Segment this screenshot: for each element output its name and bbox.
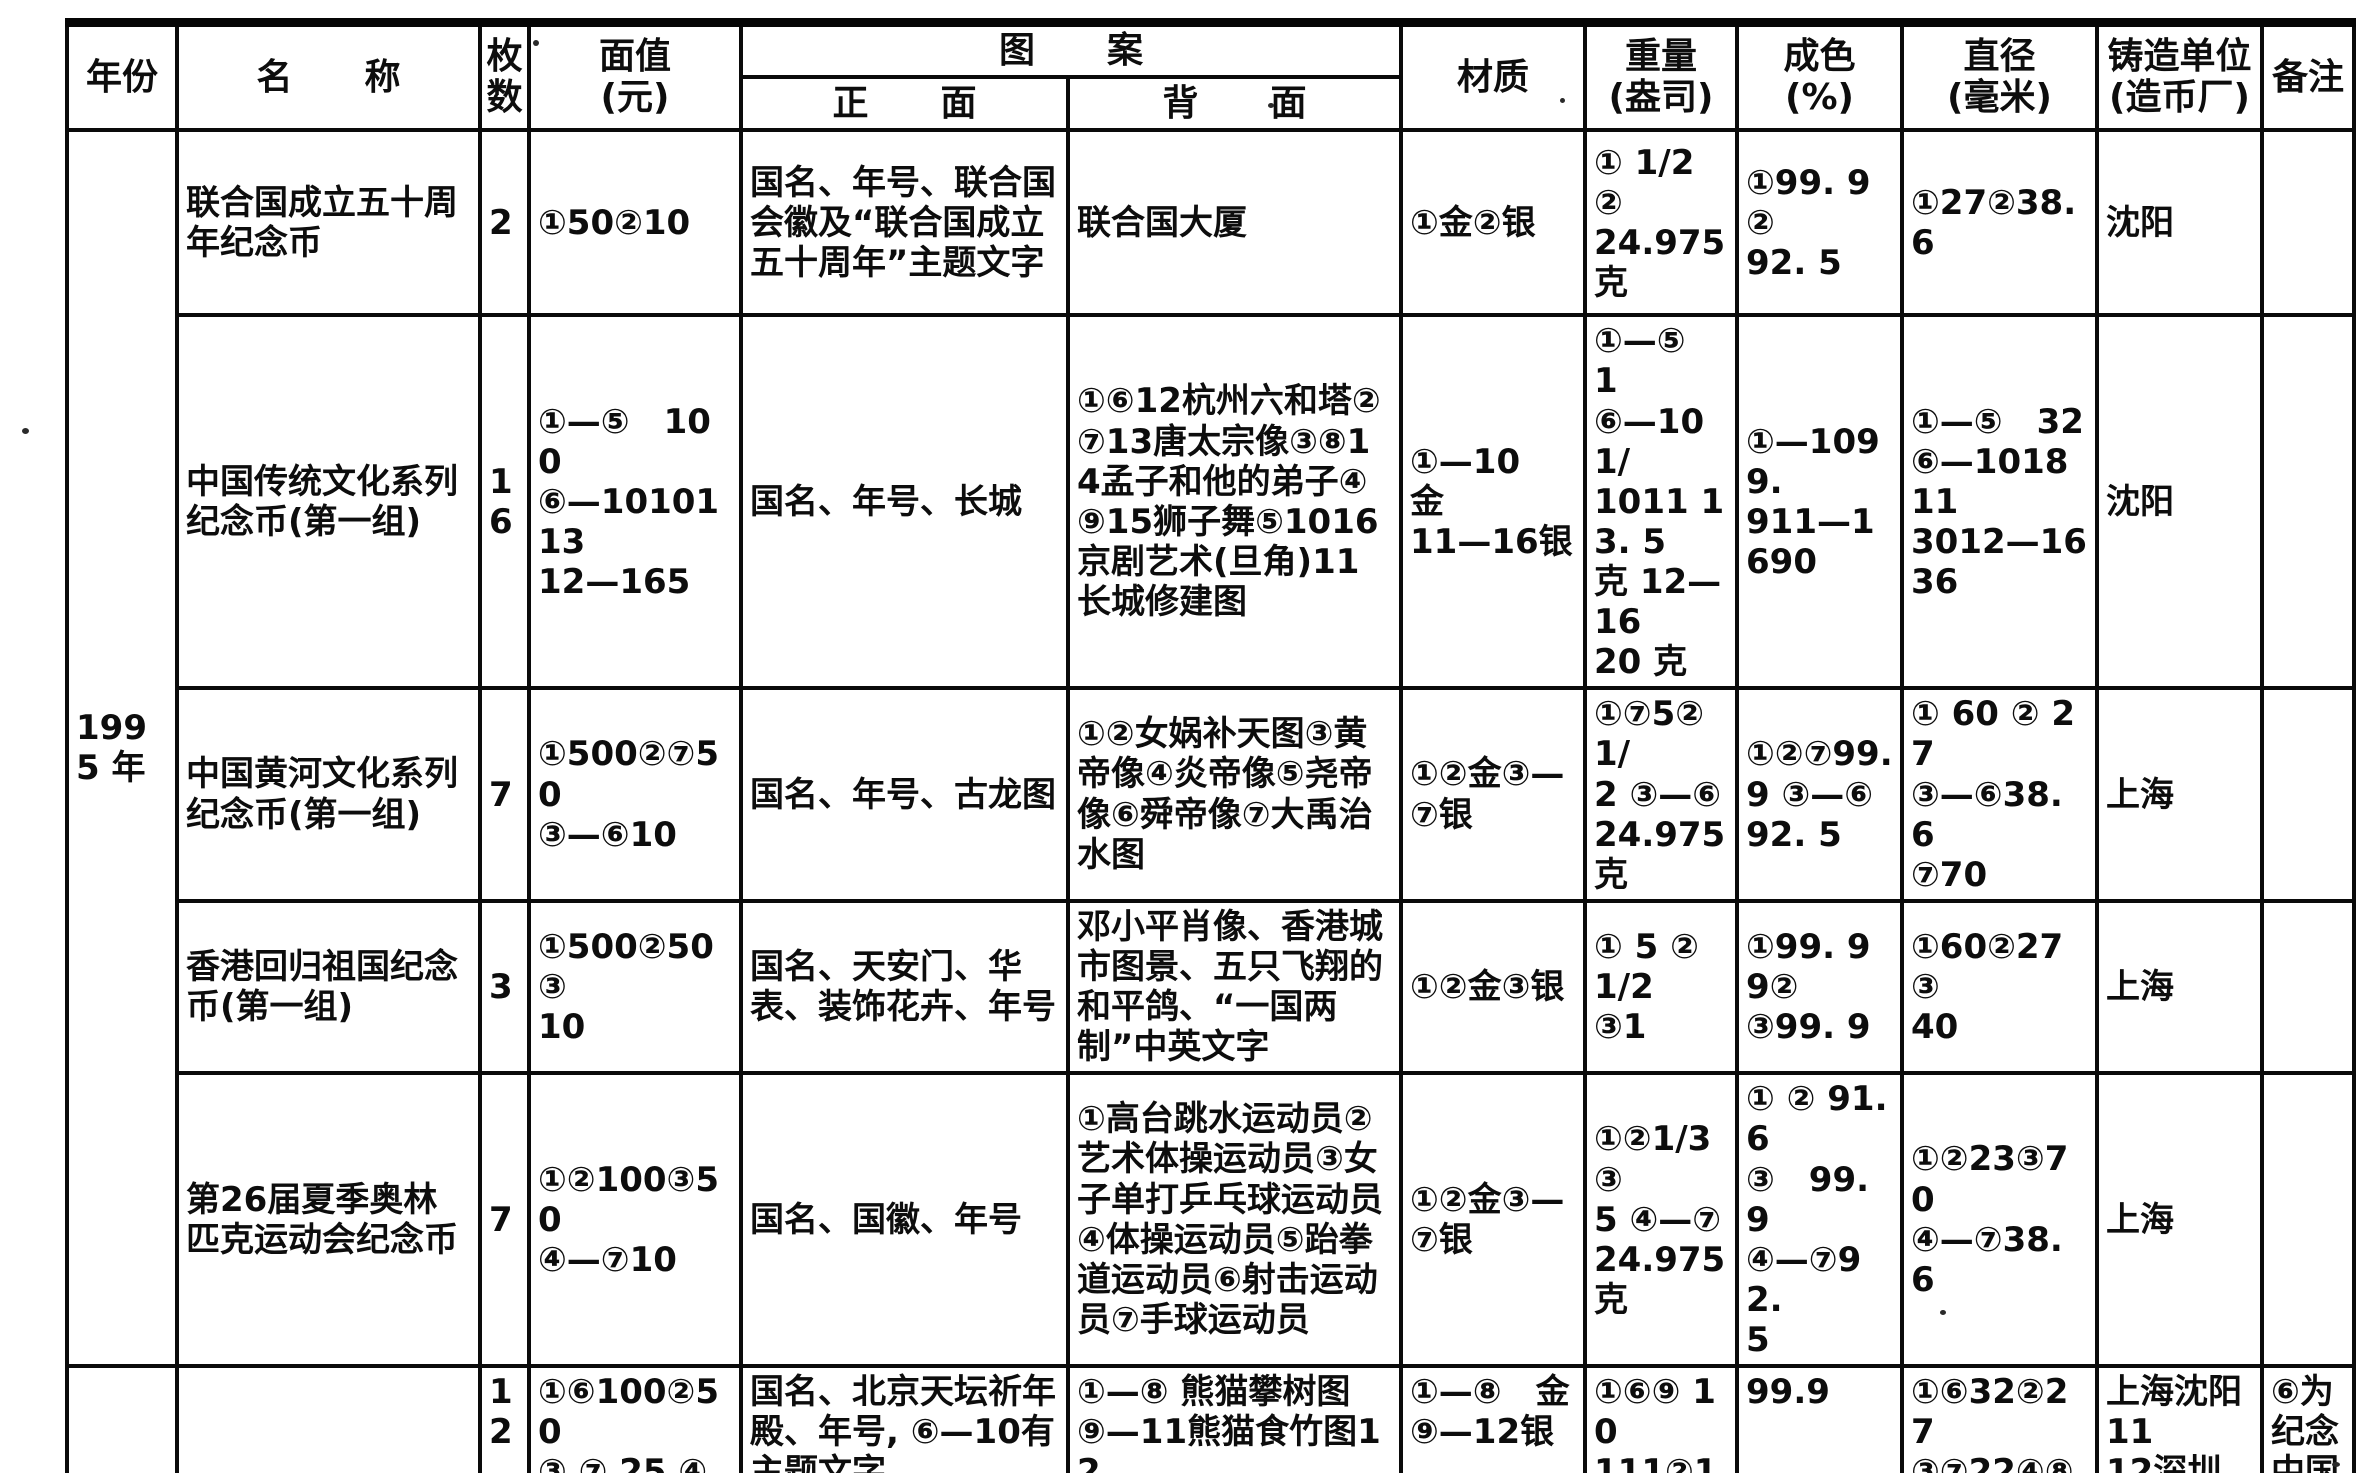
cell-count: 7 xyxy=(480,688,529,901)
cell-reverse: ①—⑧ 熊猫攀树图 ⑨—11熊猫食竹图12 溪边熊猫图 xyxy=(1068,1366,1401,1473)
cell-weight: ①⑥⑨ 10 111②121/ 2③⑦ 1/4 ④ ⑧ 1/10 ⑤1/20 xyxy=(1585,1366,1737,1473)
cell-weight: ① 5 ② 1/2 ③1 xyxy=(1585,901,1737,1073)
cell-denomination: ①500②⑦50 ③—⑥10 xyxy=(529,688,741,901)
cell-name: 香港回归祖国纪念币(第一组) xyxy=(177,901,480,1073)
col-header-reverse: 背 面 xyxy=(1068,77,1401,130)
cell-fineness: ①99. 99② ③99. 9 xyxy=(1737,901,1902,1073)
coin-table: 年份 名 称 枚 数 面值 (元) 图 案 材质 重量 (盎司) 成色 (%) … xyxy=(65,18,2356,1473)
cell-denomination: ①—⑤ 100 ⑥—1010113 12—165 xyxy=(529,315,741,688)
col-header-material: 材质 xyxy=(1401,23,1585,131)
cell-material: ①—10 金 11—16银 xyxy=(1401,315,1585,688)
cell-obverse: 国名、北京天坛祈年殿、年号, ⑥—10有主题文字 xyxy=(741,1366,1068,1473)
col-header-fineness: 成色 (%) xyxy=(1737,23,1902,131)
cell-denomination: ①50②10 xyxy=(529,130,741,315)
table-row: 香港回归祖国纪念币(第一组) 3 ①500②50③ 10 国名、天安门、华表、装… xyxy=(67,901,2354,1073)
cell-diameter: ①27②38. 6 xyxy=(1902,130,2097,315)
cell-count: 3 xyxy=(480,901,529,1073)
cell-reverse: ①②女娲补天图③黄帝像④炎帝像⑤尧帝像⑥舜帝像⑦大禹治水图 xyxy=(1068,688,1401,901)
table-row: 1996 年 1996 年版熊猫币 12 ①⑥100②50 ③ ⑦ 25 ④ ⑧… xyxy=(67,1366,2354,1473)
scan-speck xyxy=(1268,103,1274,108)
cell-fineness: ①—1099. 911—1690 xyxy=(1737,315,1902,688)
cell-name: 1996 年版熊猫币 xyxy=(177,1366,480,1473)
cell-diameter: ①②23③70 ④—⑦38. 6 xyxy=(1902,1073,2097,1366)
col-header-weight: 重量 (盎司) xyxy=(1585,23,1737,131)
table-row: 中国黄河文化系列纪念币(第一组) 7 ①500②⑦50 ③—⑥10 国名、年号、… xyxy=(67,688,2354,901)
cell-reverse: ①高台跳水运动员②艺术体操运动员③女子单打乒乓球运动员④体操运动员⑤跆拳道运动员… xyxy=(1068,1073,1401,1366)
table-row: 第26届夏季奥林匹克运动会纪念币 7 ①②100③50 ④—⑦10 国名、国徽、… xyxy=(67,1073,2354,1366)
cell-remarks xyxy=(2262,688,2354,901)
cell-mint: 上海沈阳11 12深圳国宝 xyxy=(2097,1366,2262,1473)
cell-diameter: ①⑥32②27 ③⑦22④⑧ 18⑤14⑨— 11401233 xyxy=(1902,1366,2097,1473)
cell-remarks xyxy=(2262,130,2354,315)
cell-denomination: ①②100③50 ④—⑦10 xyxy=(529,1073,741,1366)
col-header-year: 年份 xyxy=(67,23,177,131)
cell-name: 联合国成立五十周年纪念币 xyxy=(177,130,480,315)
cell-remarks xyxy=(2262,1073,2354,1366)
cell-obverse: 国名、天安门、华表、装饰花卉、年号 xyxy=(741,901,1068,1073)
cell-count: 7 xyxy=(480,1073,529,1366)
year-cell-1996: 1996 年 xyxy=(67,1366,177,1473)
cell-reverse: ①⑥12杭州六和塔②⑦13唐太宗像③⑧14孟子和他的弟子④⑨15狮子舞⑤1016… xyxy=(1068,315,1401,688)
cell-weight: ①⑦5②1/ 2 ③—⑥ 24.975 克 xyxy=(1585,688,1737,901)
cell-mint: 上海 xyxy=(2097,1073,2262,1366)
cell-diameter: ①—⑤ 32 ⑥—101811 3012—1636 xyxy=(1902,315,2097,688)
cell-fineness: ① ② 91. 6 ③ 99. 9 ④—⑦92. 5 xyxy=(1737,1073,1902,1366)
cell-diameter: ①60②27③ 40 xyxy=(1902,901,2097,1073)
cell-fineness: ①②⑦99. 9 ③—⑥ 92. 5 xyxy=(1737,688,1902,901)
scan-speck xyxy=(2332,1462,2340,1467)
cell-mint: 上海 xyxy=(2097,688,2262,901)
cell-remarks xyxy=(2262,901,2354,1073)
cell-name: 中国黄河文化系列纪念币(第一组) xyxy=(177,688,480,901)
cell-weight: ①—⑤ 1 ⑥—10 1/ 1011 13. 5 克 12—16 20 克 xyxy=(1585,315,1737,688)
cell-count: 2 xyxy=(480,130,529,315)
scanned-page: 年份 名 称 枚 数 面值 (元) 图 案 材质 重量 (盎司) 成色 (%) … xyxy=(0,0,2380,1473)
table-header: 年份 名 称 枚 数 面值 (元) 图 案 材质 重量 (盎司) 成色 (%) … xyxy=(67,23,2354,131)
cell-weight: ①②1/3③ 5 ④—⑦ 24.975 克 xyxy=(1585,1073,1737,1366)
cell-weight: ① 1/2 ② 24.975 克 xyxy=(1585,130,1737,315)
cell-mint: 沈阳 xyxy=(2097,315,2262,688)
scan-speck xyxy=(1940,1310,1946,1315)
cell-name: 中国传统文化系列纪念币(第一组) xyxy=(177,315,480,688)
scan-speck xyxy=(533,40,539,46)
cell-remarks xyxy=(2262,315,2354,688)
cell-fineness: ①99. 9② 92. 5 xyxy=(1737,130,1902,315)
col-header-name: 名 称 xyxy=(177,23,480,131)
cell-material: ①金②银 xyxy=(1401,130,1585,315)
table-row: 中国传统文化系列纪念币(第一组) 16 ①—⑤ 100 ⑥—1010113 12… xyxy=(67,315,2354,688)
cell-obverse: 国名、国徽、年号 xyxy=(741,1073,1068,1366)
cell-material: ①②金③— ⑦银 xyxy=(1401,688,1585,901)
scan-speck xyxy=(1560,98,1565,103)
year-cell-1995: 1995 年 xyxy=(67,130,177,1366)
col-header-obverse: 正 面 xyxy=(741,77,1068,130)
col-header-remarks: 备注 xyxy=(2262,23,2354,131)
cell-mint: 沈阳 xyxy=(2097,130,2262,315)
cell-mint: 上海 xyxy=(2097,901,2262,1073)
cell-name: 第26届夏季奥林匹克运动会纪念币 xyxy=(177,1073,480,1366)
cell-denomination: ①⑥100②50 ③ ⑦ 25 ④ ⑧—11 10 ⑤ 125 xyxy=(529,1366,741,1473)
cell-count: 16 xyxy=(480,315,529,688)
col-header-count: 枚 数 xyxy=(480,23,529,131)
cell-count: 12 xyxy=(480,1366,529,1473)
cell-reverse: 联合国大厦 xyxy=(1068,130,1401,315)
cell-reverse: 邓小平肖像、香港城市图景、五只飞翔的和平鸽、“一国两制”中英文字 xyxy=(1068,901,1401,1073)
cell-obverse: 国名、年号、古龙图 xyxy=(741,688,1068,901)
cell-denomination: ①500②50③ 10 xyxy=(529,901,741,1073)
cell-obverse: 国名、年号、联合国会徽及“联合国成立五十周年”主题文字 xyxy=(741,130,1068,315)
scan-speck xyxy=(22,428,29,434)
table-row: 1995 年 联合国成立五十周年纪念币 2 ①50②10 国名、年号、联合国会徽… xyxy=(67,130,2354,315)
cell-remarks: ⑥为 纪念 中国 熊猫 币发 行15 周年 而发 行 xyxy=(2262,1366,2354,1473)
cell-material: ①②金③银 xyxy=(1401,901,1585,1073)
col-header-denomination: 面值 (元) xyxy=(529,23,741,131)
cell-material: ①—⑧ 金 ⑨—12银 xyxy=(1401,1366,1585,1473)
cell-diameter: ① 60 ② 27 ③—⑥38. 6 ⑦70 xyxy=(1902,688,2097,901)
cell-fineness: 99.9 xyxy=(1737,1366,1902,1473)
cell-obverse: 国名、年号、长城 xyxy=(741,315,1068,688)
col-header-mint: 铸造单位 (造币厂) xyxy=(2097,23,2262,131)
cell-material: ①②金③— ⑦银 xyxy=(1401,1073,1585,1366)
col-header-design: 图 案 xyxy=(741,23,1401,78)
col-header-diameter: 直径 (毫米) xyxy=(1902,23,2097,131)
